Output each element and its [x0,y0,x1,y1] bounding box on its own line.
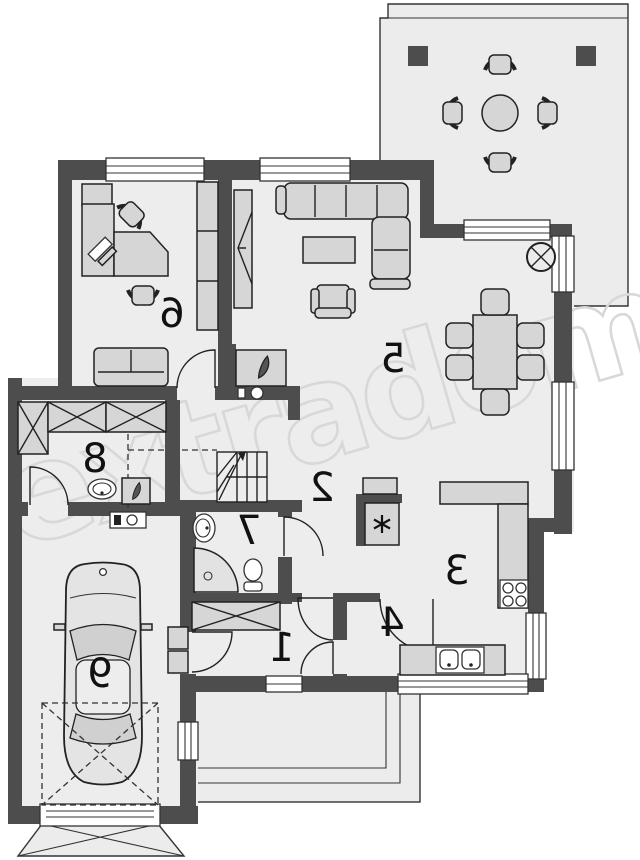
dining-chair [481,389,509,415]
terrace-window [552,382,574,470]
fireplace [226,344,290,400]
wardrobe [192,602,280,630]
cooktop [500,580,528,608]
driveway-apron [18,824,184,856]
bookcase [197,182,218,330]
window [178,722,198,760]
wardrobe [48,402,106,432]
entrance-door [266,676,302,692]
window [552,236,574,292]
cabinet [363,478,397,494]
floor-plan-page: extradom [0,0,640,860]
staircase [217,451,267,502]
guest-chair [128,286,158,305]
door-opening [333,640,347,674]
room-label-utility-room: 8 [82,436,107,482]
dining-chair [446,323,473,348]
office-cabinet [82,184,112,206]
car-mirror [141,624,152,630]
garage-door [40,804,160,826]
office-sofa [94,348,168,386]
terrace-chair [485,55,515,74]
terrace-column-post [408,46,428,66]
dining-chair [446,355,473,380]
kitchen-counter [440,482,528,504]
entry-porch-steps [196,690,420,802]
wardrobe [18,402,48,454]
room-label-bathroom: 7 [236,508,261,554]
circled-x-icon [527,243,555,271]
dining-table [473,315,517,389]
washbasin [193,514,215,542]
wardrobe [106,402,166,432]
window [106,158,204,181]
room-label-living-room: 5 [380,336,405,382]
terrace-round-table [482,95,518,131]
terrace-chair [538,98,557,128]
door-opening [28,502,68,516]
door-opening [278,517,292,557]
door-opening [177,386,215,400]
window [398,674,528,694]
desk [82,204,114,276]
tv-cabinet [234,190,252,308]
terrace-column-post [576,46,596,66]
window [260,158,350,181]
room-label-vestibule: 1 [269,625,294,671]
garage-shelf [168,651,188,673]
boiler [122,478,150,504]
kitchen-sink [436,647,484,673]
room-label-office: 6 [159,291,184,337]
refrigerator [365,503,399,545]
window [464,220,550,240]
room-label-kitchen: 3 [444,548,469,594]
utility-sink [88,479,116,499]
dining-chair [517,355,544,380]
floor-plan-svg: extradom [0,0,640,860]
window [526,613,546,679]
armchair [311,285,355,318]
terrace-chair [485,153,515,172]
dining-chair [481,289,509,315]
terrace-chair [443,98,462,128]
room-label-garage: 9 [87,651,112,697]
wall-meter-fixture [110,512,146,528]
dining-chair [517,323,544,348]
room-label-hall: 2 [309,465,334,511]
toilet [244,559,262,591]
room-label-pantry: 4 [379,600,404,646]
garage-shelf [168,627,188,649]
car-mirror [54,624,65,630]
coffee-table [303,237,355,263]
